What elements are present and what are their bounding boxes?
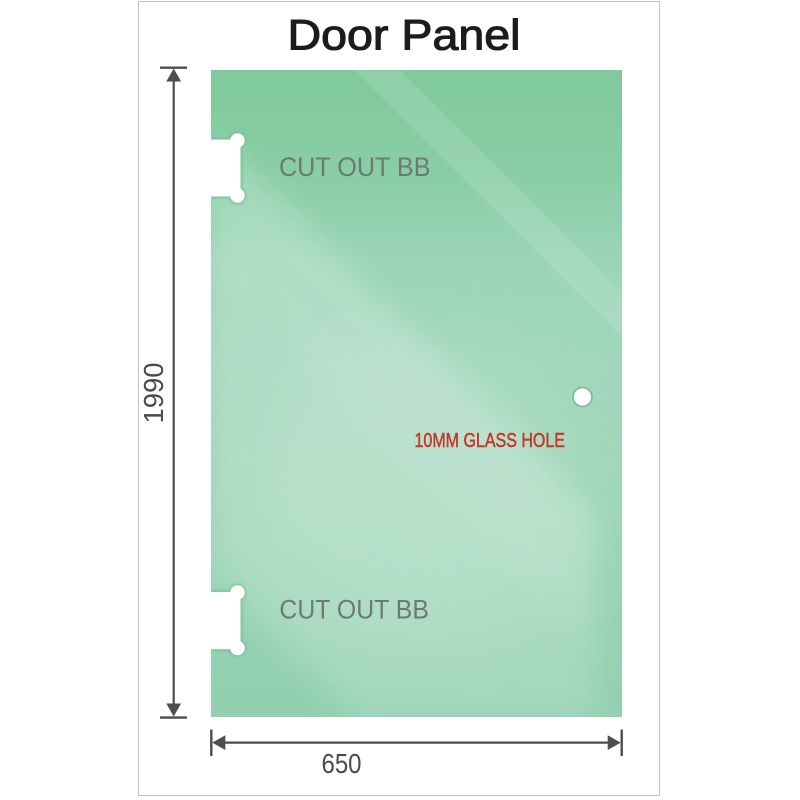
svg-text:10MM GLASS HOLE: 10MM GLASS HOLE bbox=[415, 430, 566, 452]
svg-text:1990: 1990 bbox=[138, 363, 169, 424]
svg-text:CUT OUT BB: CUT OUT BB bbox=[279, 152, 431, 182]
svg-text:Door Panel: Door Panel bbox=[288, 11, 521, 59]
svg-text:650: 650 bbox=[322, 748, 362, 779]
svg-text:CUT OUT BB: CUT OUT BB bbox=[279, 595, 429, 625]
